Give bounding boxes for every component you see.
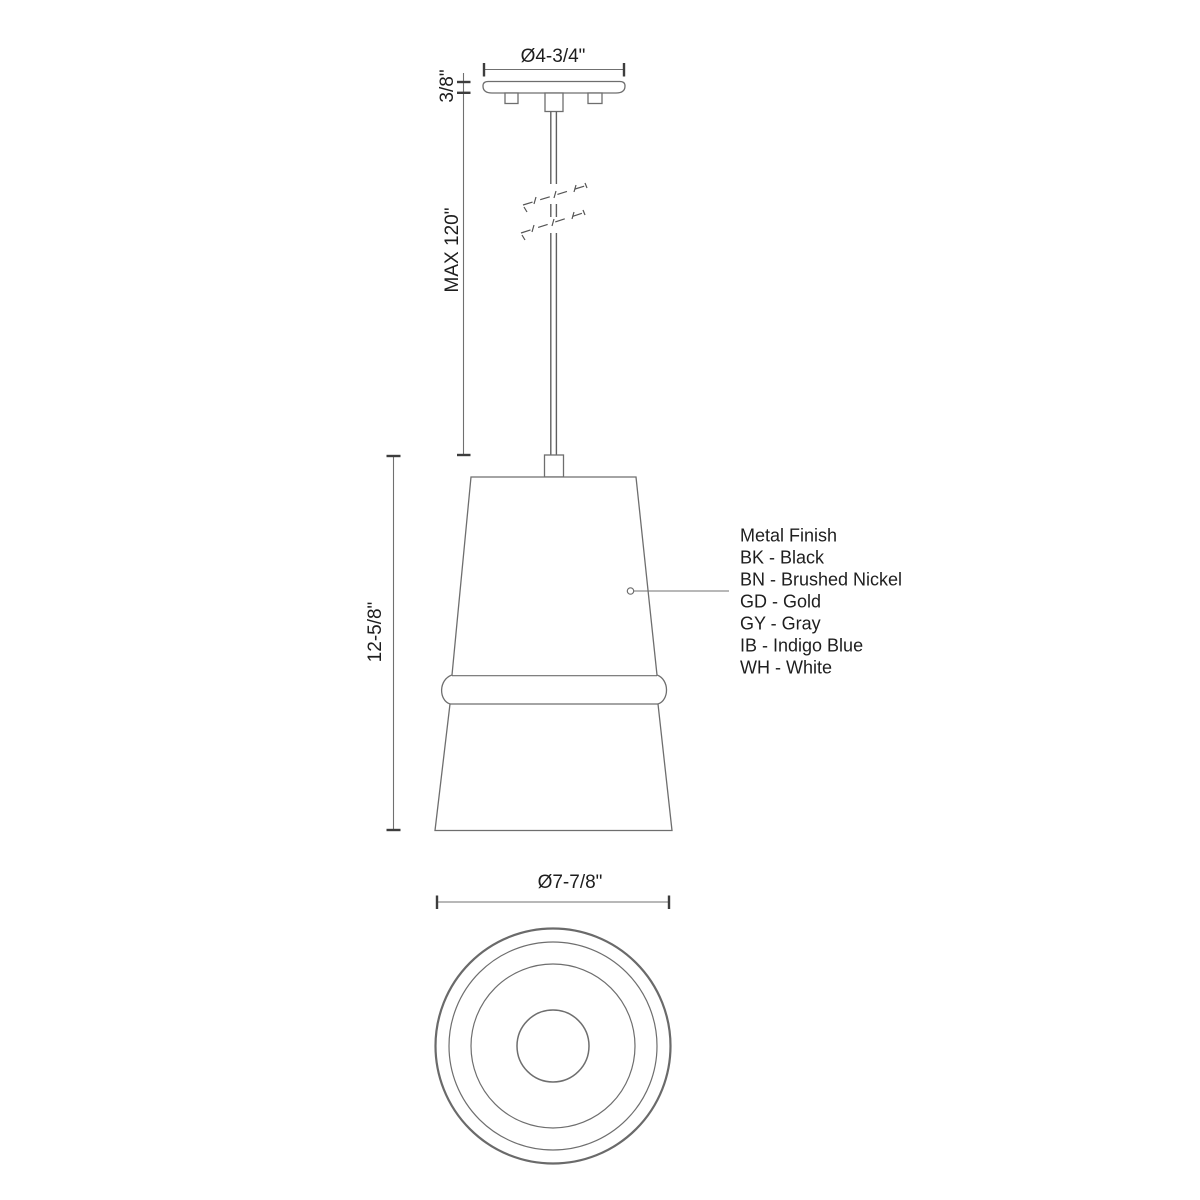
dim-bottom-diameter: Ø7-7/8" [437,872,669,909]
pendant-spec-sheet: Ø4-3/4" 3/8" MAX 120" [0,0,1200,1200]
bottom-view: Ø7-7/8" [436,872,671,1164]
canopy-diameter-label: Ø4-3/4" [521,46,586,67]
mounting-tab-left [505,93,518,104]
finish-legend-item: BK - Black [740,548,825,568]
finish-legend: Metal Finish BK - Black BN - Brushed Nic… [740,526,902,678]
bottom-diameter-label: Ø7-7/8" [538,872,603,893]
suspension-rod [521,112,588,456]
dim-max-drop: MAX 120" [442,208,471,455]
front-view: Ø4-3/4" 3/8" MAX 120" [365,46,729,831]
stem-connector [545,455,564,477]
bottom-shade-top-circle [471,964,635,1128]
bottom-socket-circle [517,1010,589,1082]
drawing-svg: Ø4-3/4" 3/8" MAX 120" [0,0,1200,1200]
canopy-plate [483,82,625,94]
dim-shade-height: 12-5/8" [365,456,401,830]
canopy-hub [545,93,563,112]
finish-legend-item: GY - Gray [740,614,821,634]
finish-legend-item: WH - White [740,658,832,678]
canopy-height-label: 3/8" [437,69,458,102]
break-symbol-upper [523,183,588,212]
finish-legend-title: Metal Finish [740,526,837,546]
shade-height-label: 12-5/8" [365,602,386,663]
max-drop-label: MAX 120" [442,208,463,293]
mounting-tab-right [588,93,602,104]
shade [435,477,672,831]
finish-legend-item: IB - Indigo Blue [740,636,863,656]
shade-outline [435,477,672,831]
break-symbol-lower [521,210,586,240]
finish-legend-item: BN - Brushed Nickel [740,570,902,590]
dim-canopy-diameter: Ø4-3/4" [484,46,624,77]
bottom-band-circle [449,942,657,1150]
finish-legend-item: GD - Gold [740,592,821,612]
